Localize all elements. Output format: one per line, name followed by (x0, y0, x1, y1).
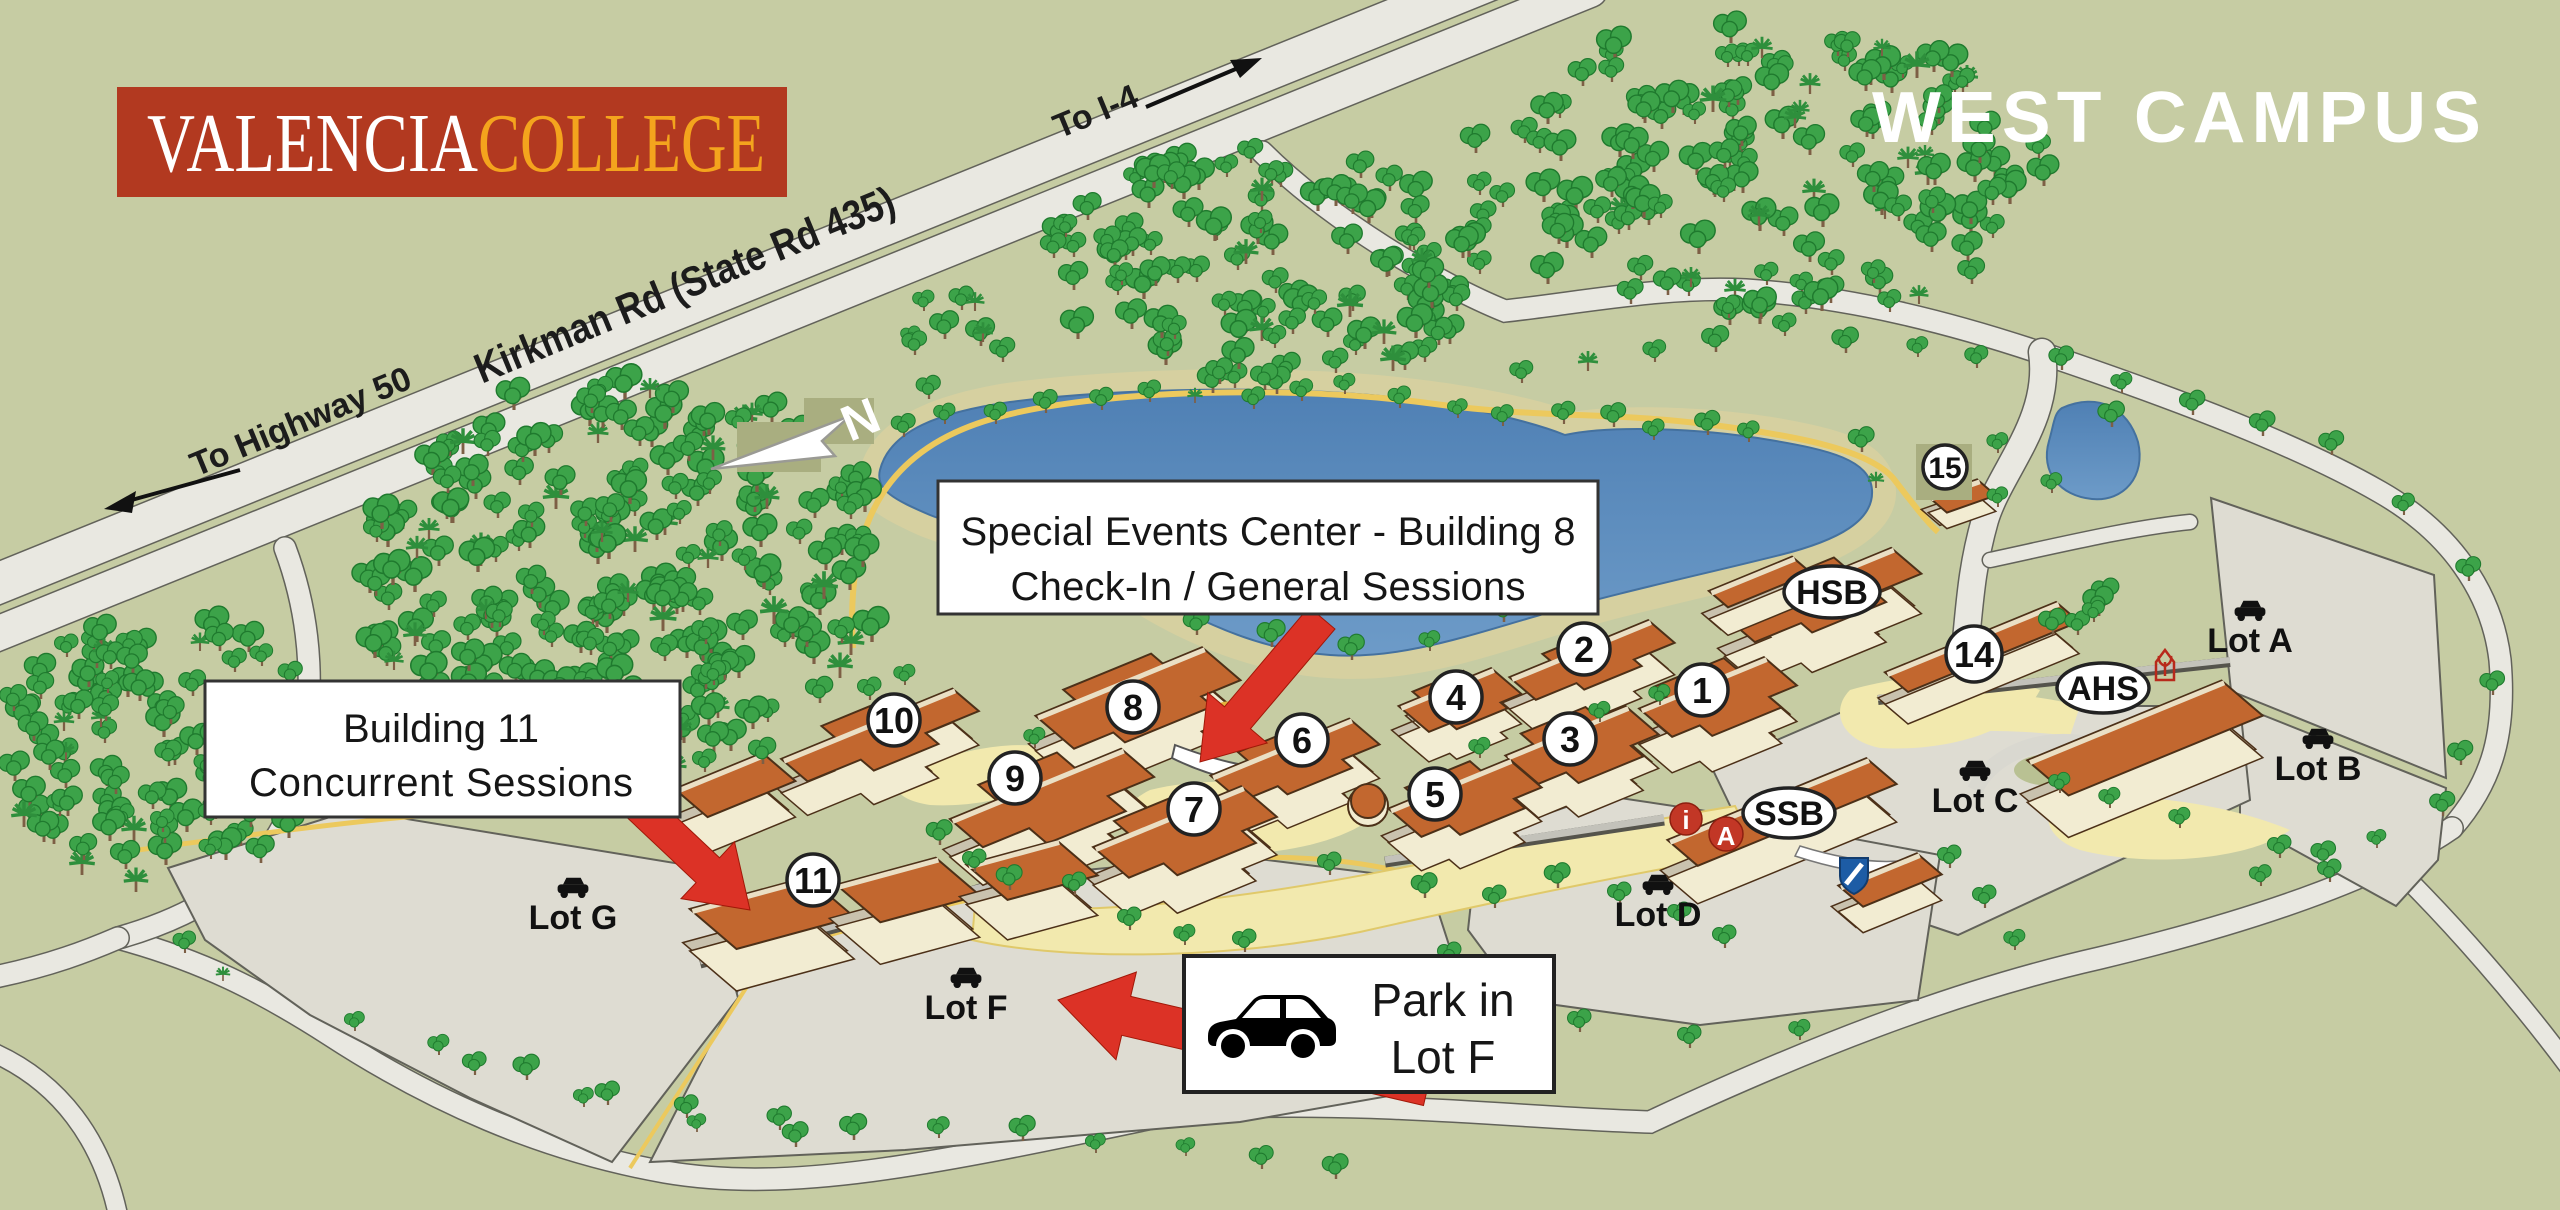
svg-text:Lot G: Lot G (529, 899, 618, 937)
svg-text:AHS: AHS (2067, 670, 2139, 708)
svg-text:8: 8 (1123, 687, 1143, 728)
svg-text:HSB: HSB (1796, 574, 1868, 612)
svg-text:6: 6 (1292, 720, 1312, 761)
svg-text:Check-In / General Sessions: Check-In / General Sessions (1011, 565, 1526, 609)
svg-text:SSB: SSB (1754, 795, 1824, 833)
svg-text:2: 2 (1574, 629, 1594, 670)
svg-text:Lot C: Lot C (1932, 782, 2019, 820)
svg-text:5: 5 (1425, 774, 1445, 815)
svg-text:Special Events Center - Buildi: Special Events Center - Building 8 (961, 510, 1576, 554)
svg-text:Park in: Park in (1371, 974, 1514, 1026)
svg-text:1: 1 (1692, 670, 1712, 711)
svg-text:Building 11: Building 11 (343, 707, 539, 751)
svg-text:i: i (1682, 805, 1689, 835)
svg-text:VALENCIA: VALENCIA (147, 97, 478, 190)
svg-text:Lot B: Lot B (2275, 750, 2362, 788)
svg-text:15: 15 (1928, 452, 1961, 485)
svg-text:3: 3 (1560, 719, 1580, 760)
svg-text:Lot F: Lot F (924, 989, 1007, 1027)
svg-text:Lot F: Lot F (1391, 1031, 1496, 1083)
svg-text:9: 9 (1005, 758, 1025, 799)
svg-text:A: A (1717, 821, 1736, 851)
svg-text:14: 14 (1954, 634, 1994, 675)
svg-text:Concurrent Sessions: Concurrent Sessions (249, 761, 633, 805)
svg-text:4: 4 (1446, 677, 1466, 718)
svg-text:11: 11 (794, 860, 832, 901)
svg-text:Lot D: Lot D (1615, 896, 1702, 934)
svg-text:COLLEGE: COLLEGE (478, 97, 765, 190)
svg-text:7: 7 (1184, 789, 1204, 830)
svg-text:WEST CAMPUS: WEST CAMPUS (1872, 78, 2487, 158)
svg-text:Lot A: Lot A (2207, 622, 2293, 660)
svg-text:10: 10 (874, 700, 914, 741)
